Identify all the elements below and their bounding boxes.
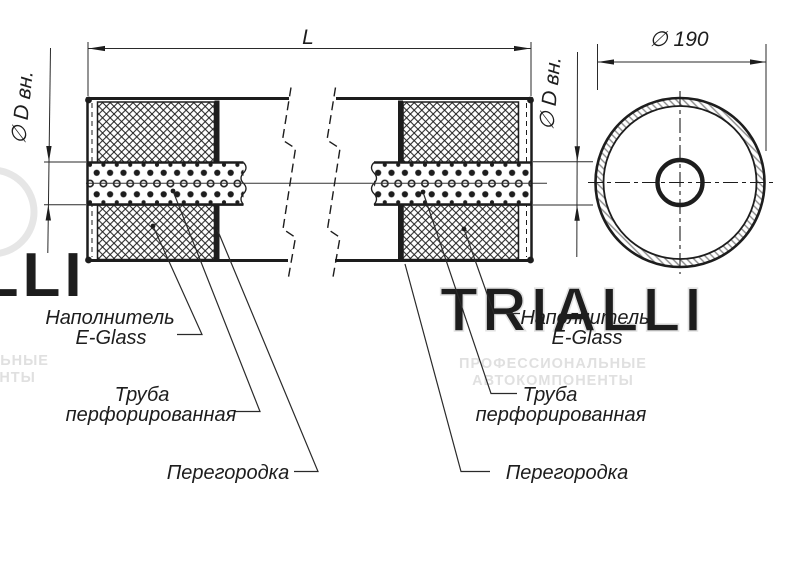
watermark-tagline-left-1: ПРОФЕССИОНАЛЬНЫЕ [0, 353, 49, 369]
arrowhead [46, 205, 51, 221]
callout-filler-right-line1: Наполнитель [520, 307, 649, 329]
callout-labels: Наполнитель E-Glass Труба перфорированна… [45, 307, 649, 484]
seam-bead [85, 97, 92, 104]
break-lines [283, 88, 341, 278]
arrowhead [598, 59, 615, 64]
arrowhead [574, 205, 579, 221]
callout-filler-left-line1: Наполнитель [45, 307, 174, 329]
dim-length-label: L [302, 26, 314, 49]
watermark-tagline-1: ПРОФЕССИОНАЛЬНЫЕ [459, 356, 647, 372]
seam-bead [85, 257, 92, 264]
dim-inner-diameter-right-label: ∅ D вн. [535, 56, 566, 131]
seam-bead [527, 257, 534, 264]
drawing-svg: TRIALLI TRIALLI ПРОФЕССИОНАЛЬНЫЕ АВТОКОМ… [0, 0, 800, 569]
arrowhead [514, 46, 531, 51]
dim-outer-diameter-label: ∅ 190 [649, 28, 708, 51]
callout-pipe-right-line1: Труба [523, 384, 578, 406]
callout-baffle-left: Перегородка [167, 462, 290, 484]
callout-pipe-right-line2: перфорированная [476, 404, 647, 426]
callout-baffle-right: Перегородка [506, 462, 629, 484]
arrowhead [750, 59, 766, 64]
callout-pipe-left-line1: Труба [115, 384, 170, 406]
watermark-brand-left: TRIALLI [0, 241, 86, 310]
dim-inner-diameter-left-label: ∅ D вн. [7, 70, 38, 145]
arrowhead [575, 146, 580, 162]
seam-bead [527, 97, 534, 104]
arrowhead [46, 146, 51, 162]
callout-pipe-left-line2: перфорированная [66, 404, 237, 426]
end-view [588, 91, 773, 274]
arrowhead [89, 46, 106, 51]
callout-filler-right-line2: E-Glass [551, 327, 622, 349]
watermark-tagline-left-2: АВТОКОМПОНЕНТЫ [0, 370, 36, 386]
center-marks [588, 91, 773, 274]
side-section-view [85, 88, 547, 278]
dim-length-lines [88, 42, 531, 96]
leader-baffle-left [218, 230, 319, 472]
muffler-technical-drawing: TRIALLI TRIALLI ПРОФЕССИОНАЛЬНЫЕ АВТОКОМ… [0, 0, 800, 569]
callout-filler-left-line2: E-Glass [75, 327, 146, 349]
